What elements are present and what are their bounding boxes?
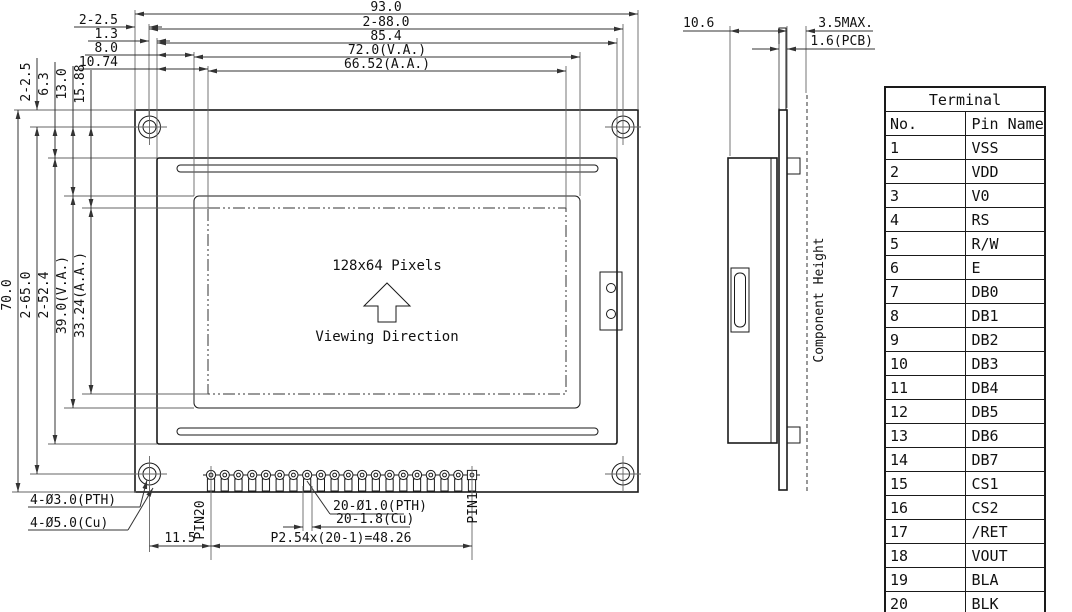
pin-side [779, 28, 786, 110]
table-row: 12DB5 [885, 400, 1045, 424]
table-row: 14DB7 [885, 448, 1045, 472]
display-glass [194, 196, 580, 408]
dim-module-thickness: 10.6 [683, 16, 714, 31]
dim-pin-pitch: P2.54x(20-1)=48.26 [271, 531, 412, 546]
viewing-direction-label: Viewing Direction [315, 329, 458, 345]
dim-va-height: 39.0(V.A.) [55, 256, 70, 334]
bezel-frame [157, 158, 617, 444]
dim-top-to-hole-v: 2-2.5 [19, 62, 34, 101]
pin-no: 12 [885, 400, 965, 424]
pin-no: 6 [885, 256, 965, 280]
pin-name: CS2 [965, 496, 1045, 520]
dim-hole-to-va-v: 13.0 [55, 68, 70, 99]
front-bottom-dimensions: 11.5 P2.54x(20-1)=48.26 20-Ø1.0(PTH) 20-… [28, 466, 481, 560]
table-row: 10DB3 [885, 352, 1045, 376]
pin-no: 4 [885, 208, 965, 232]
table-row: 9DB2 [885, 328, 1045, 352]
bezel-slot-bottom [177, 428, 598, 435]
pin-name: DB4 [965, 376, 1045, 400]
col-header-pin-name: Pin Name [965, 112, 1045, 136]
pin-no: 8 [885, 304, 965, 328]
dim-hole-to-pin20: 11.5 [164, 531, 195, 546]
front-top-dimensions: 93.0 2-88.0 85.4 72.0(V.A.) 66.52(A.A.) [135, 0, 638, 208]
pin-name: VDD [965, 160, 1045, 184]
table-row: 19BLA [885, 568, 1045, 592]
pin-name: E [965, 256, 1045, 280]
pin-name: VSS [965, 136, 1045, 160]
pin-no: 2 [885, 160, 965, 184]
dim-total-height: 70.0 [0, 279, 15, 310]
pcb-side [779, 110, 787, 490]
dim-edge-to-hole: 2-2.5 [79, 13, 118, 28]
dim-pin-pad: 20-1.8(Cu) [336, 512, 414, 527]
table-row: 4RS [885, 208, 1045, 232]
dim-hole-to-bezel-v: 6.3 [37, 72, 52, 95]
pin-no: 5 [885, 232, 965, 256]
connector-side [731, 268, 749, 332]
pin-no: 15 [885, 472, 965, 496]
pin-no: 16 [885, 496, 965, 520]
pin-name: VOUT [965, 544, 1045, 568]
pin-no: 13 [885, 424, 965, 448]
pin-name: BLA [965, 568, 1045, 592]
col-header-no: No. [885, 112, 965, 136]
pin-no: 11 [885, 376, 965, 400]
terminal-table: Terminal No. Pin Name 1VSS 2VDD 3V0 4RS … [884, 86, 1046, 612]
pin-name: RS [965, 208, 1045, 232]
table-row: 18VOUT [885, 544, 1045, 568]
pin-no: 9 [885, 328, 965, 352]
pin-name: DB5 [965, 400, 1045, 424]
bezel-slot-top [177, 165, 598, 172]
dim-pcb-thickness: 1.6(PCB) [810, 34, 873, 49]
dim-bezel-height: 2-52.4 [37, 271, 52, 318]
front-left-offset-dimensions: 2-2.5 1.3 8.0 10.74 [74, 13, 208, 70]
dim-hole-to-aa-v: 15.88 [73, 64, 88, 103]
dim-bezel-to-va: 8.0 [95, 41, 118, 56]
active-area-outline [208, 208, 566, 394]
pin-no: 14 [885, 448, 965, 472]
table-row: 6E [885, 256, 1045, 280]
table-row: 2VDD [885, 160, 1045, 184]
side-view: Component Height 10.6 3.5MAX. 1.6(PCB) [683, 16, 875, 492]
table-row: 1VSS [885, 136, 1045, 160]
table-row: 15CS1 [885, 472, 1045, 496]
table-row: 8DB1 [885, 304, 1045, 328]
pin-name: CS1 [965, 472, 1045, 496]
dim-mount-hole-cu: 4-Ø5.0(Cu) [30, 516, 108, 531]
lcd-module-drawing: 128x64 Pixels Viewing Direction 93.0 2-8… [0, 0, 1072, 612]
pin1-label: PIN1 [466, 492, 481, 523]
pin-no: 10 [885, 352, 965, 376]
pin-name: V0 [965, 184, 1045, 208]
dim-component-max: 3.5MAX. [818, 16, 873, 31]
contact-hole [607, 310, 616, 319]
dim-mount-hole-pth: 4-Ø3.0(PTH) [30, 493, 116, 508]
table-header-row: No. Pin Name [885, 112, 1045, 136]
dim-total-width: 93.0 [370, 0, 401, 15]
pin20-label: PIN20 [193, 500, 208, 539]
pin-no: 20 [885, 592, 965, 612]
bezel-tab-bottom [787, 427, 800, 443]
pin-name: DB0 [965, 280, 1045, 304]
viewing-direction-arrow-icon [364, 283, 410, 322]
pin-name: DB6 [965, 424, 1045, 448]
dim-bezel-width: 85.4 [370, 29, 401, 44]
contact-block [600, 272, 622, 330]
table-row: 7DB0 [885, 280, 1045, 304]
pin-name: DB1 [965, 304, 1045, 328]
table-row: 5R/W [885, 232, 1045, 256]
pin-name: BLK [965, 592, 1045, 612]
pin-no: 3 [885, 184, 965, 208]
pin-header-row [206, 470, 476, 491]
dim-aa-width: 66.52(A.A.) [344, 57, 430, 72]
dim-hole-span: 2-88.0 [363, 15, 410, 30]
pin-no: 17 [885, 520, 965, 544]
table-title: Terminal [885, 87, 1045, 112]
pin-name: DB7 [965, 448, 1045, 472]
dim-va-width: 72.0(V.A.) [348, 43, 426, 58]
dim-hole-to-bezel: 1.3 [95, 27, 118, 42]
pin-no: 18 [885, 544, 965, 568]
table-row: 11DB4 [885, 376, 1045, 400]
pin-no: 19 [885, 568, 965, 592]
component-height-label: Component Height [812, 237, 827, 362]
table-row: 17/RET [885, 520, 1045, 544]
pin-name: /RET [965, 520, 1045, 544]
table-row: 16CS2 [885, 496, 1045, 520]
table-row: 13DB6 [885, 424, 1045, 448]
table-row: 3V0 [885, 184, 1045, 208]
pin-no: 1 [885, 136, 965, 160]
lcd-body-side [728, 158, 777, 443]
bezel-tab-top [787, 158, 800, 174]
pin-no: 7 [885, 280, 965, 304]
pin-name: DB2 [965, 328, 1045, 352]
table-row: 20BLK [885, 592, 1045, 612]
dim-hole-span-v: 2-65.0 [19, 272, 34, 319]
contact-hole [607, 284, 616, 293]
dim-aa-height: 33.24(A.A.) [73, 252, 88, 338]
pixels-label: 128x64 Pixels [332, 258, 442, 274]
table-title-row: Terminal [885, 87, 1045, 112]
pin-name: R/W [965, 232, 1045, 256]
front-left-vertical-dimensions: 2-2.5 6.3 13.0 15.88 70.0 2-65.0 2-52.4 … [0, 58, 208, 492]
pin-name: DB3 [965, 352, 1045, 376]
